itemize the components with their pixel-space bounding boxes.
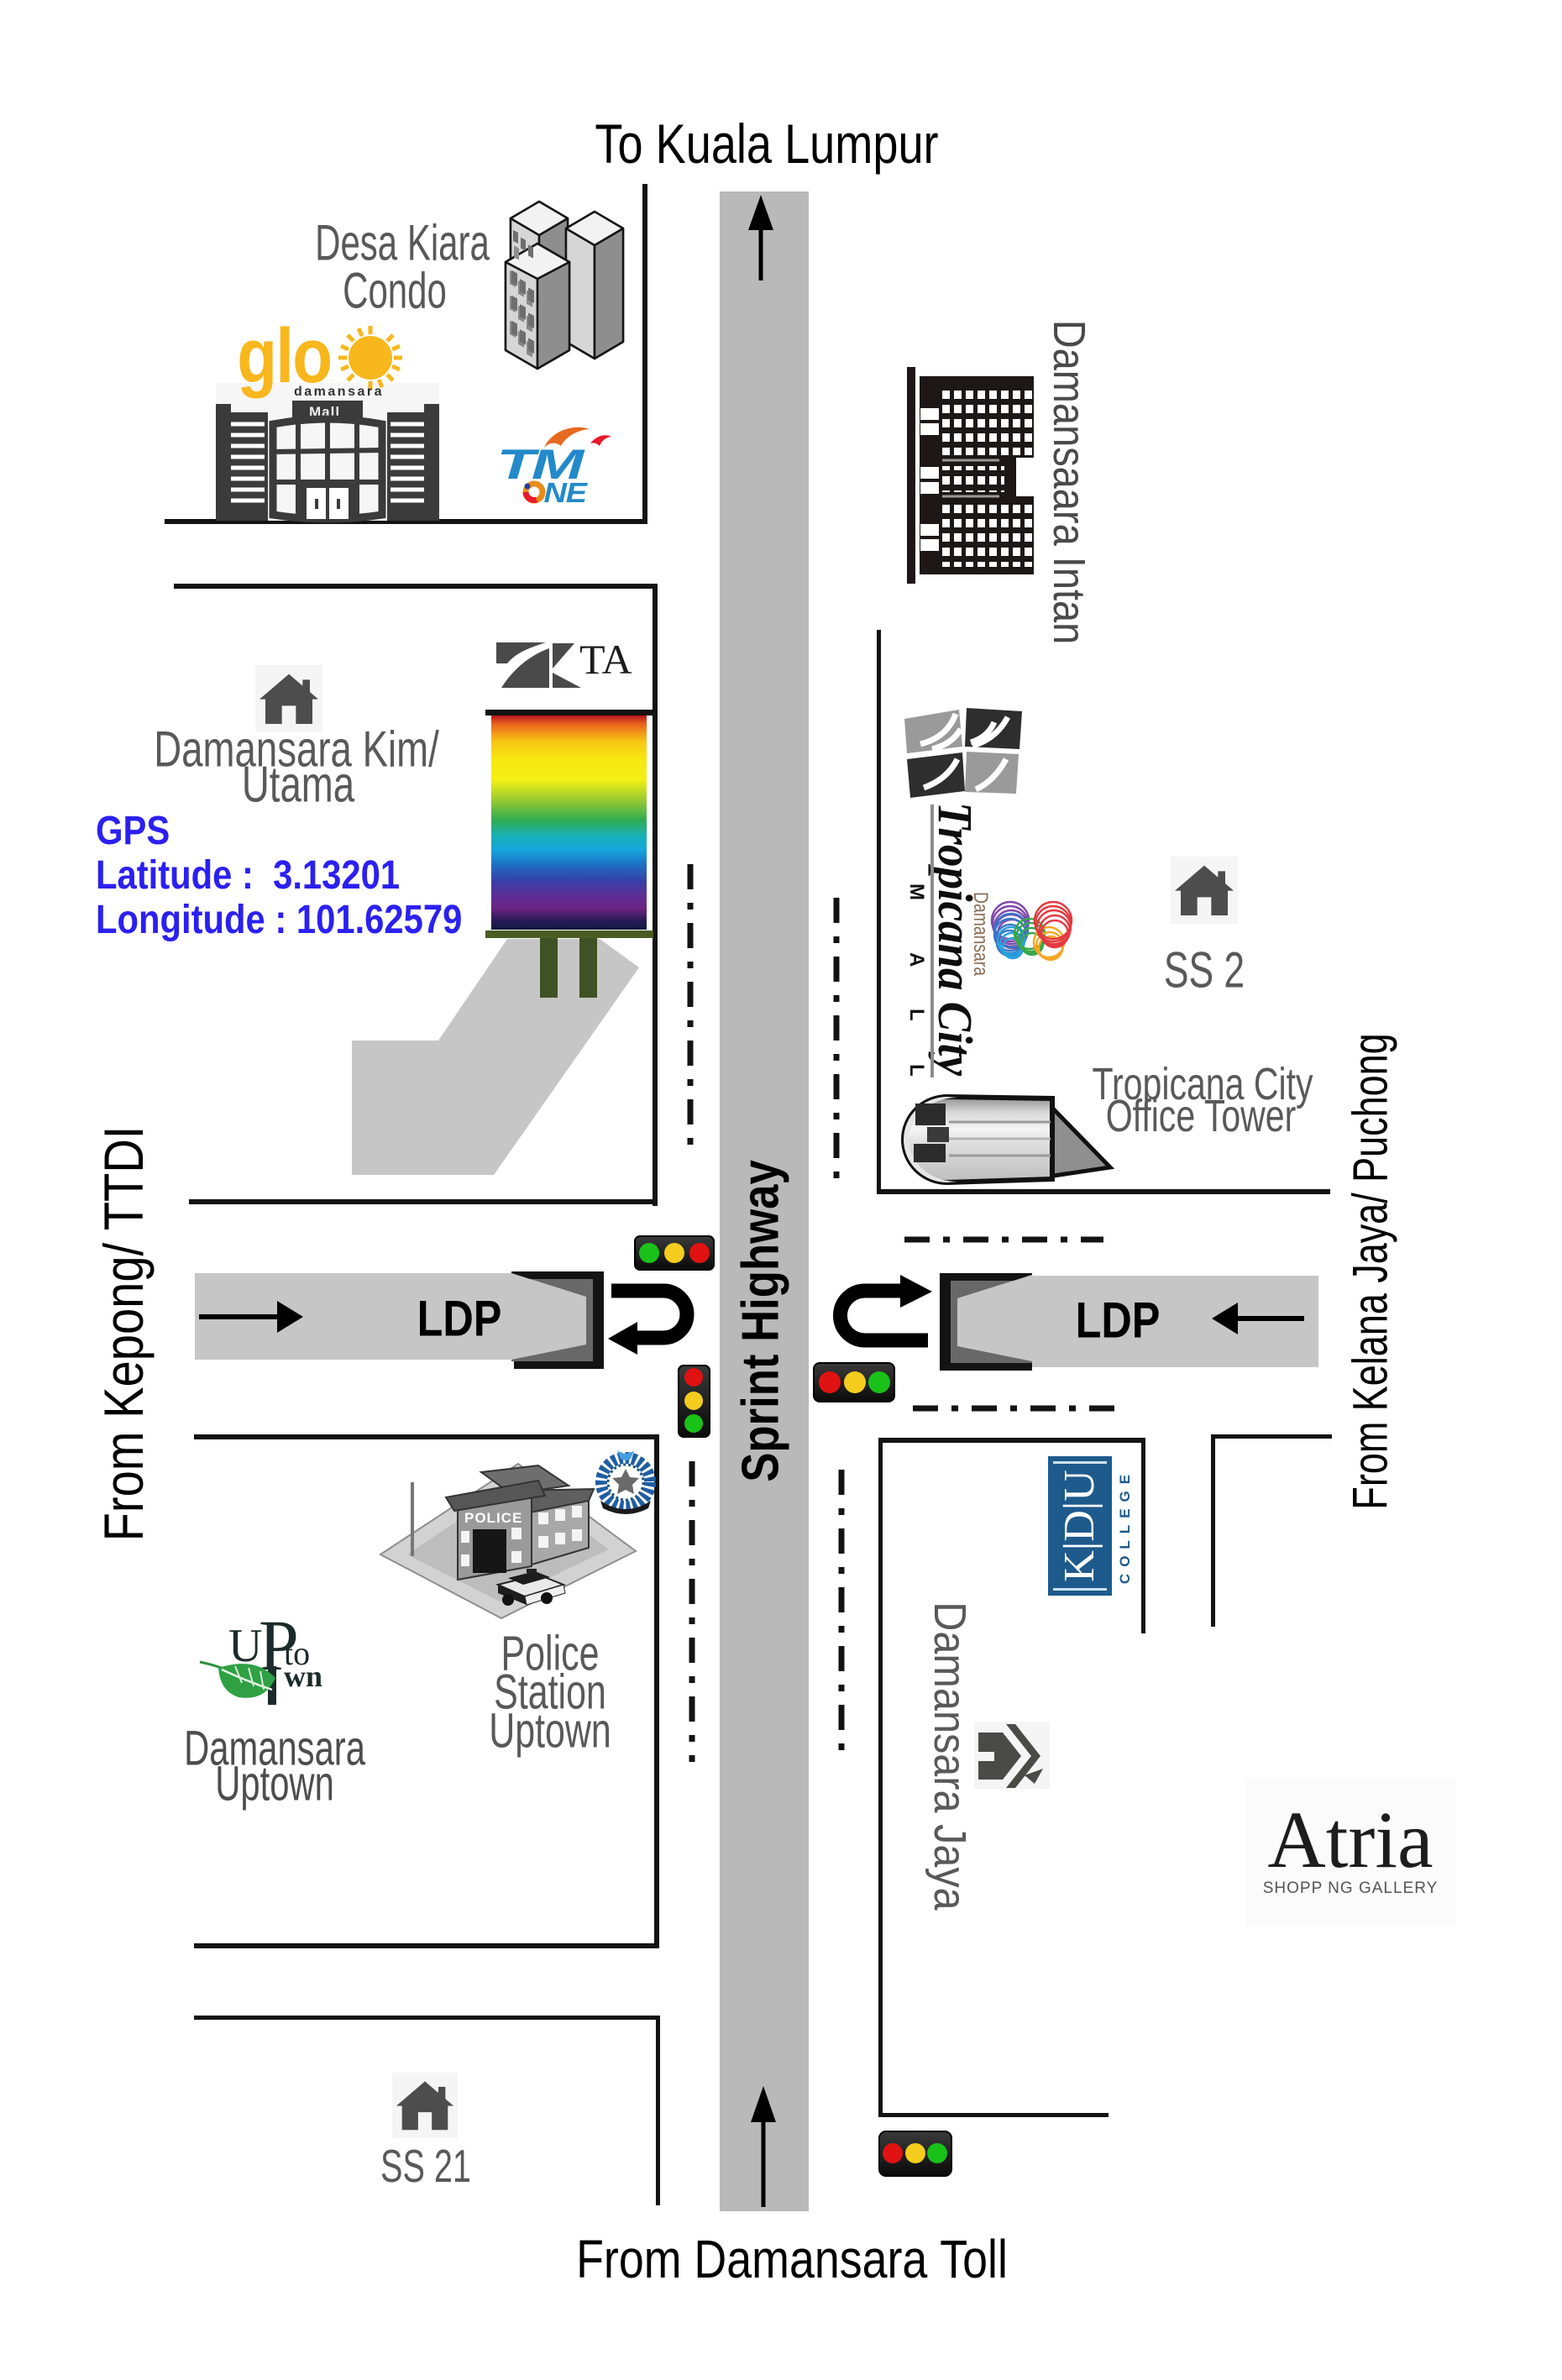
- svg-text:K|D|U: K|D|U: [1056, 1470, 1103, 1581]
- svg-text:NE: NE: [544, 477, 589, 508]
- svg-text:COLLEGE: COLLEGE: [1117, 1468, 1133, 1584]
- svg-text:L: L: [905, 1064, 928, 1077]
- svg-text:wn: wn: [284, 1659, 322, 1693]
- svg-text:M: M: [905, 883, 928, 900]
- svg-text:Atria: Atria: [1267, 1795, 1433, 1885]
- svg-text:A: A: [905, 952, 928, 967]
- svg-text:TA: TA: [579, 636, 632, 683]
- svg-text:SHOPP NG GALLERY: SHOPP NG GALLERY: [1263, 1879, 1439, 1897]
- svg-text:Damansara: Damansara: [969, 892, 992, 977]
- svg-text:L: L: [905, 1009, 928, 1021]
- svg-text:damansara: damansara: [294, 385, 384, 399]
- svg-text:POLICE: POLICE: [464, 1510, 522, 1526]
